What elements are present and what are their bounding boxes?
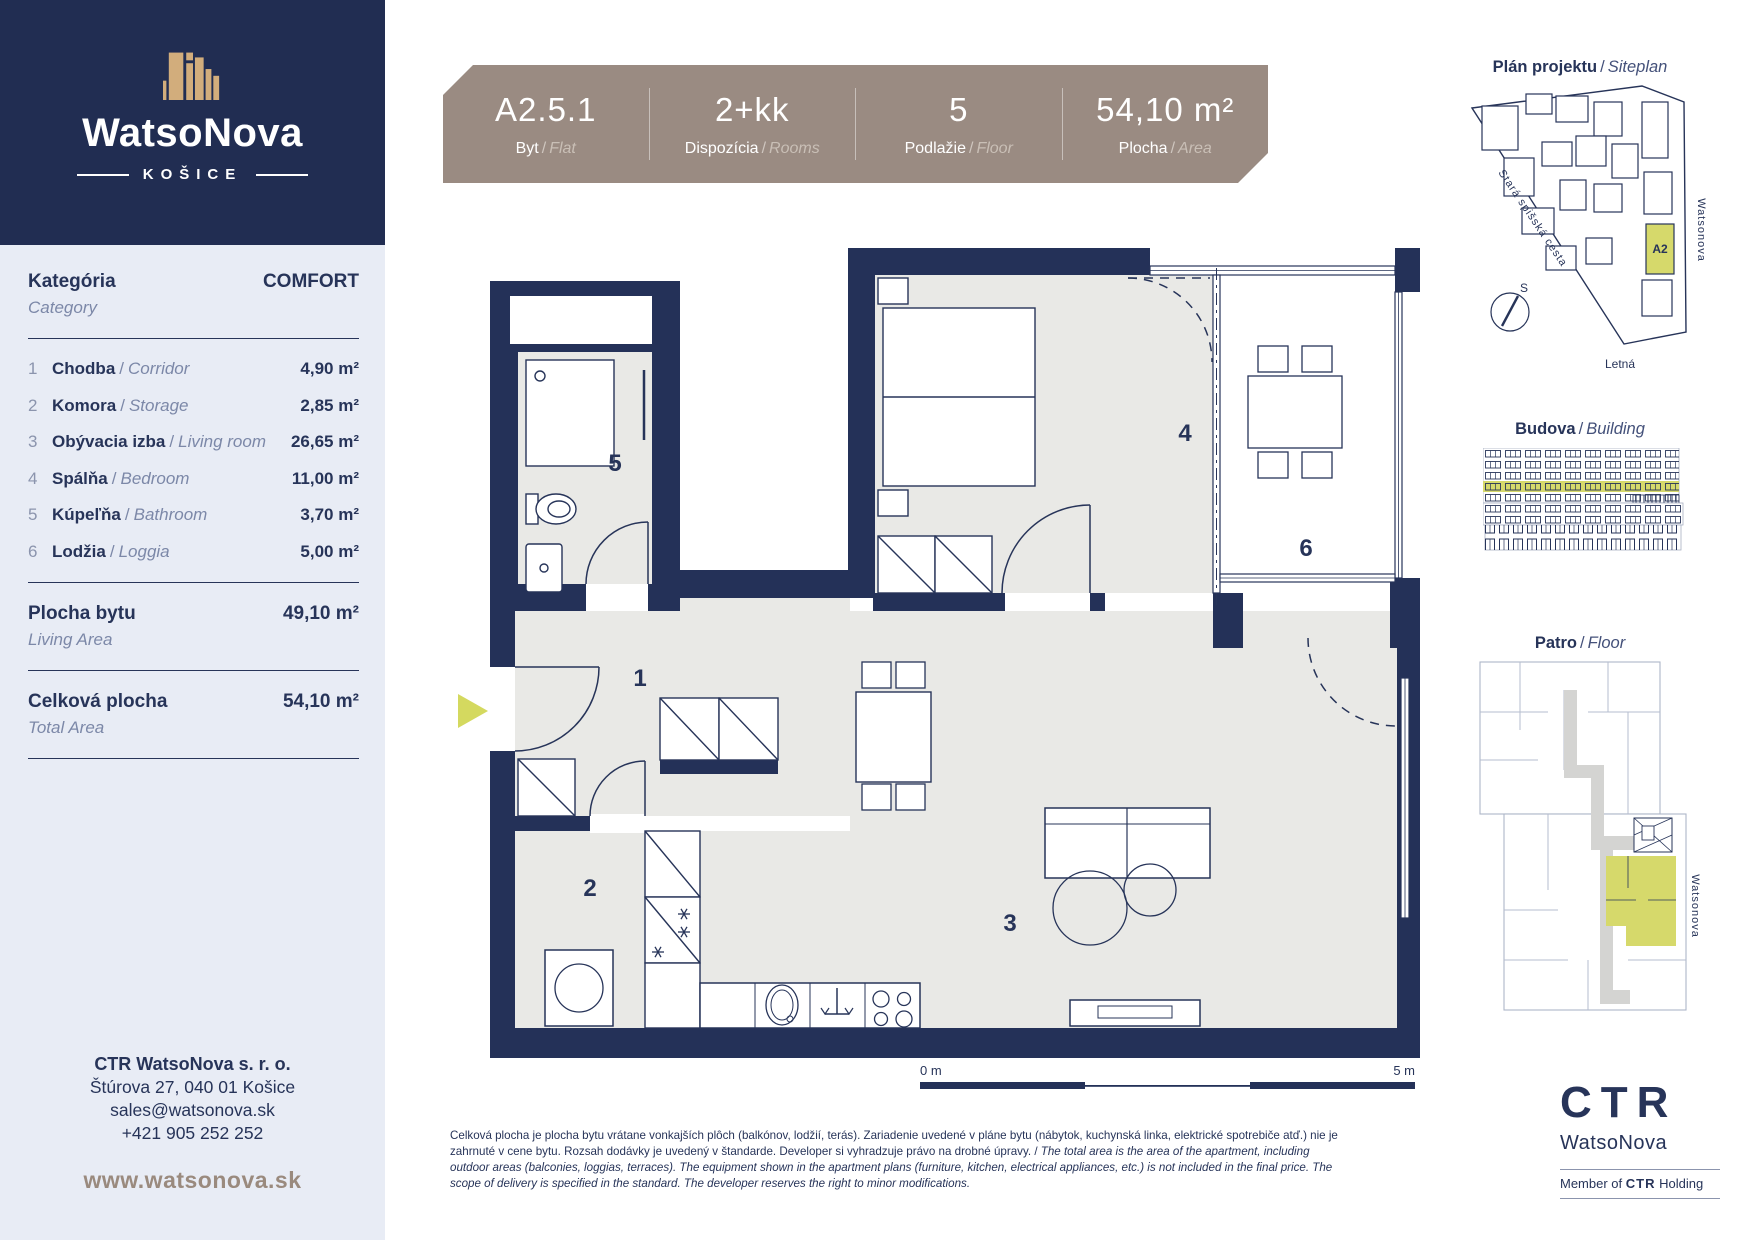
ctr-holding-logo: CTR WatsoNova Member of CTR Holding — [1560, 1078, 1730, 1199]
floor-plan: 1 2 3 4 5 6 0 m 5 m — [450, 248, 1420, 1100]
siteplan-title-en: Siteplan — [1608, 58, 1668, 76]
category-row: Kategória Category COMFORT — [28, 271, 359, 318]
category-label-en: Category — [28, 298, 116, 318]
living-area-label-sk: Plocha bytu — [28, 603, 136, 625]
brochure-page: WatsoNova KOŠICE Kategória Category COMF… — [0, 0, 1754, 1240]
flat-label-sk: Byt — [516, 140, 539, 157]
floor-key-plan: Watsonova — [1478, 660, 1702, 1016]
separator: / — [110, 542, 115, 561]
table-row: 5 Kúpeľňa/Bathroom 3,70 m² — [28, 505, 359, 525]
table-row: 2 Komora/Storage 2,85 m² — [28, 396, 359, 416]
room-label-loggia: 6 — [1299, 535, 1312, 562]
room-name-en: Bathroom — [134, 505, 208, 524]
room-number: 6 — [28, 542, 52, 562]
street-label-bottom: Letná — [1605, 357, 1635, 371]
divider — [1560, 1198, 1720, 1199]
brand-name: WatsoNova — [0, 111, 385, 156]
holding-text: Holding — [1659, 1176, 1703, 1191]
room-number: 1 — [28, 359, 52, 379]
company-website: www.watsonova.sk — [0, 1169, 385, 1192]
room-label-bathroom: 5 — [608, 450, 621, 477]
room-name-sk: Chodba — [52, 359, 115, 378]
room-label-storage: 2 — [583, 875, 596, 902]
room-name-en: Living room — [178, 432, 266, 451]
brand-city: KOŠICE — [143, 166, 243, 183]
washing-machine — [545, 950, 613, 1026]
room-area: 2,85 m² — [300, 396, 359, 416]
separator: / — [1600, 58, 1605, 76]
rooms-label-en: Rooms — [769, 140, 820, 157]
sidebar-brand-panel: WatsoNova KOŠICE — [0, 0, 385, 245]
building-title-sk: Budova — [1515, 420, 1576, 438]
ctr-member-line: Member of CTR Holding — [1560, 1176, 1720, 1191]
category-label-sk: Kategória — [28, 271, 116, 293]
floor-label-en: Floor — [976, 140, 1012, 157]
decorative-line — [256, 174, 308, 176]
company-address: Štúrova 27, 040 01 Košice — [0, 1076, 385, 1099]
floor-label-sk: Podlažie — [905, 140, 966, 157]
room-name-sk: Spálňa — [52, 469, 108, 488]
room-label-living: 3 — [1003, 910, 1016, 937]
header-cell-floor: 5 Podlažie/Floor — [856, 91, 1062, 158]
scale-start-label: 0 m — [920, 1063, 942, 1078]
separator: / — [762, 140, 766, 157]
ctr-logotype: CTR — [1560, 1078, 1730, 1128]
room-area: 4,90 m² — [300, 359, 359, 379]
ctr-small-logo: CTR — [1626, 1176, 1656, 1191]
room-number: 2 — [28, 396, 52, 416]
flat-label-en: Flat — [549, 140, 576, 157]
decorative-line — [77, 174, 129, 176]
scale-end-label: 5 m — [1393, 1063, 1415, 1078]
total-area-label-en: Total Area — [28, 718, 167, 738]
street-label-right: Watsonova — [1695, 198, 1707, 262]
room-area: 11,00 m² — [292, 469, 359, 489]
building-a2-label: A2 — [1652, 242, 1668, 256]
building-elevation — [1483, 448, 1687, 552]
loggia-furniture — [1248, 346, 1342, 478]
header-cell-rooms: 2+kk Dispozícia/Rooms — [650, 91, 856, 158]
company-name: CTR WatsoNova s. r. o. — [0, 1053, 385, 1076]
entrance-arrow-icon — [458, 694, 488, 728]
layout-value: 2+kk — [650, 91, 856, 129]
total-area-value: 54,10 m² — [283, 691, 359, 738]
table-row: 6 Lodžia/Loggia 5,00 m² — [28, 542, 359, 562]
total-area-row: Celková plocha Total Area 54,10 m² — [28, 691, 359, 738]
building-title-en: Building — [1586, 420, 1645, 438]
flat-id: A2.5.1 — [443, 91, 649, 129]
company-phone: +421 905 252 252 — [0, 1122, 385, 1145]
total-area-label-sk: Celková plocha — [28, 691, 167, 713]
building-logo-icon — [161, 40, 225, 100]
member-of-text: Member of — [1560, 1176, 1622, 1191]
floor-title: Patro/Floor — [1420, 634, 1740, 653]
separator: / — [1579, 420, 1584, 438]
room-number: 3 — [28, 432, 52, 452]
area-label-sk: Plocha — [1119, 140, 1168, 157]
room-table: 1 Chodba/Corridor 4,90 m² 2 Komora/Stora… — [28, 359, 359, 562]
header-cell-area: 54,10 m² Plocha/Area — [1063, 91, 1269, 158]
company-email: sales@watsonova.sk — [0, 1099, 385, 1122]
stair-core — [1634, 818, 1672, 852]
separator: / — [125, 505, 130, 524]
separator: / — [169, 432, 174, 451]
floor-title-en: Floor — [1588, 634, 1626, 652]
street-label: Watsonova — [1689, 874, 1701, 938]
separator: / — [969, 140, 973, 157]
scale-bar: 0 m 5 m — [920, 1063, 1415, 1089]
room-name-en: Corridor — [128, 359, 189, 378]
room-label-corridor: 1 — [633, 665, 646, 692]
compass-label: S — [1520, 281, 1528, 295]
table-row: 1 Chodba/Corridor 4,90 m² — [28, 359, 359, 379]
area-label-en: Area — [1178, 140, 1212, 157]
room-number: 5 — [28, 505, 52, 525]
header-cell-flat: A2.5.1 Byt/Flat — [443, 91, 649, 158]
rooms-label-sk: Dispozícia — [685, 140, 759, 157]
divider — [28, 758, 359, 759]
kitchen-tall-units — [645, 831, 700, 1028]
divider — [28, 338, 359, 339]
room-name-sk: Lodžia — [52, 542, 106, 561]
room-name-sk: Kúpeľňa — [52, 505, 121, 524]
floor-title-sk: Patro — [1535, 634, 1577, 652]
divider — [28, 670, 359, 671]
room-name-en: Loggia — [119, 542, 170, 561]
kitchen-counter — [700, 983, 920, 1028]
divider — [1560, 1169, 1720, 1170]
table-row: 3 Obývacia izba/Living room 26,65 m² — [28, 432, 359, 452]
room-name-en: Bedroom — [120, 469, 189, 488]
living-area-value: 49,10 m² — [283, 603, 359, 650]
unit-header-bar: A2.5.1 Byt/Flat 2+kk Dispozícia/Rooms 5 … — [443, 65, 1268, 183]
separator: / — [119, 359, 124, 378]
separator: / — [112, 469, 117, 488]
floor-value: 5 — [856, 91, 1062, 129]
siteplan-title-sk: Plán projektu — [1493, 58, 1598, 76]
room-label-bedroom: 4 — [1178, 420, 1192, 447]
separator: / — [120, 396, 125, 415]
area-value: 54,10 m² — [1063, 91, 1269, 129]
room-name-en: Storage — [129, 396, 189, 415]
separator: / — [542, 140, 546, 157]
room-name-sk: Komora — [52, 396, 116, 415]
siteplan-map: A2 S Stará spišská cesta Watsonova Letná — [1452, 80, 1708, 380]
separator: / — [1580, 634, 1585, 652]
separator: / — [1171, 140, 1175, 157]
room-number: 4 — [28, 469, 52, 489]
room-area: 26,65 m² — [291, 432, 359, 452]
table-row: 4 Spálňa/Bedroom 11,00 m² — [28, 469, 359, 489]
room-name-sk: Obývacia izba — [52, 432, 165, 451]
sidebar-spec-panel: Kategória Category COMFORT 1 Chodba/Corr… — [0, 245, 385, 1240]
brand-city-row: KOŠICE — [0, 166, 385, 183]
divider — [28, 582, 359, 583]
room-area: 3,70 m² — [300, 505, 359, 525]
siteplan-title: Plán projektu/Siteplan — [1420, 58, 1740, 77]
living-area-label-en: Living Area — [28, 630, 136, 650]
disclaimer-text: Celková plocha je plocha bytu vrátane vo… — [450, 1128, 1345, 1192]
living-area-row: Plocha bytu Living Area 49,10 m² — [28, 603, 359, 650]
brand-logo: WatsoNova KOŠICE — [0, 0, 385, 183]
ctr-brand-name: WatsoNova — [1560, 1132, 1730, 1155]
contact-block: CTR WatsoNova s. r. o. Štúrova 27, 040 0… — [0, 1053, 385, 1192]
room-area: 5,00 m² — [300, 542, 359, 562]
building-title: Budova/Building — [1420, 420, 1740, 439]
category-value: COMFORT — [263, 271, 359, 293]
